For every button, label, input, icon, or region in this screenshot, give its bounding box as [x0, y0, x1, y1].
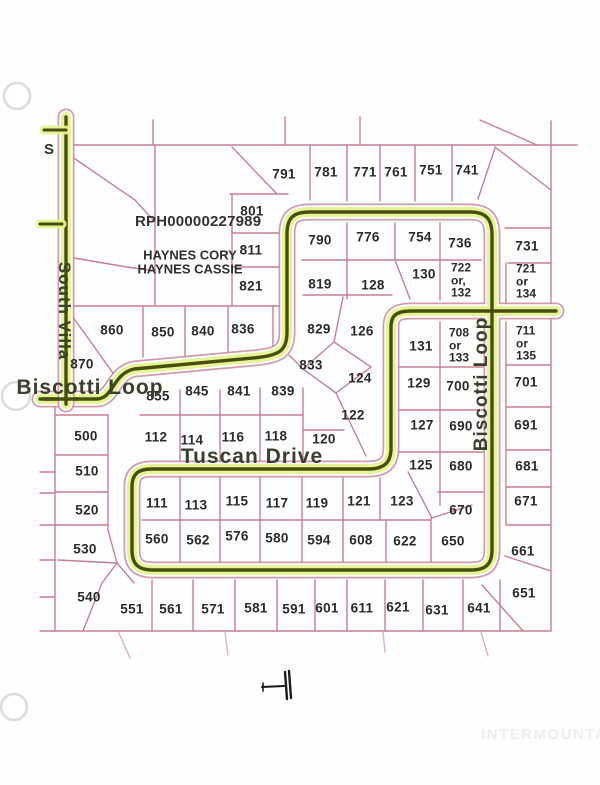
- lot-label-621: 621: [386, 600, 409, 615]
- scanned-plat-map: 7917817717617517418018118217907767547368…: [0, 0, 600, 785]
- lot-label-736: 736: [448, 236, 471, 251]
- lot-label-845: 845: [185, 384, 208, 399]
- owner-line-1: HAYNES CORY: [138, 249, 243, 263]
- lot-label-671: 671: [514, 494, 537, 509]
- lot-label-551: 551: [120, 602, 143, 617]
- lot-label-580: 580: [265, 531, 288, 546]
- lot-label-841: 841: [227, 384, 250, 399]
- lot-label-701: 701: [514, 375, 537, 390]
- lot-label-761: 761: [384, 165, 407, 180]
- lot-label-611: 611: [351, 601, 374, 616]
- lot-label-819: 819: [308, 277, 331, 292]
- lot-label-670: 670: [449, 503, 472, 518]
- lot-label-117: 117: [266, 496, 289, 511]
- lot-label-661: 661: [511, 544, 534, 559]
- lot-label-650: 650: [441, 534, 464, 549]
- lot-label-651: 651: [512, 586, 535, 601]
- punch-hole-icon: [4, 83, 30, 109]
- lot-label-776: 776: [356, 230, 379, 245]
- lot-label-711: 711 or 135: [516, 324, 536, 362]
- lot-label-540: 540: [77, 590, 100, 605]
- lot-label-829: 829: [307, 322, 330, 337]
- lot-label-622: 622: [393, 534, 416, 549]
- lot-label-510: 510: [75, 464, 98, 479]
- lot-label-811: 811: [240, 243, 263, 258]
- lot-label-116: 116: [222, 430, 245, 445]
- lot-label-560: 560: [145, 532, 168, 547]
- lot-label-608: 608: [349, 533, 372, 548]
- lot-label-690: 690: [449, 419, 472, 434]
- street-label-south-villa: South Villa: [54, 262, 74, 361]
- lot-label-113: 113: [185, 498, 208, 513]
- lot-label-681: 681: [515, 459, 538, 474]
- lot-label-115: 115: [226, 494, 249, 509]
- lot-label-131: 131: [409, 339, 432, 354]
- lot-label-530: 530: [73, 542, 96, 557]
- lot-label-111: 111: [146, 496, 168, 511]
- lot-label-833: 833: [299, 358, 322, 373]
- lot-label-791: 791: [272, 167, 295, 182]
- lot-label-591: 591: [282, 602, 305, 617]
- lot-label-721: 721 or 134: [516, 262, 536, 300]
- lot-label-125: 125: [409, 458, 432, 473]
- lot-label-119: 119: [306, 496, 329, 511]
- lot-label-691: 691: [514, 418, 537, 433]
- lot-label-821: 821: [239, 279, 262, 294]
- lot-label-731: 731: [515, 239, 538, 254]
- lot-label-680: 680: [449, 459, 472, 474]
- lot-label-581: 581: [244, 601, 267, 616]
- punch-holes: [1, 83, 30, 720]
- street-label-biscotti-loop-west: Biscotti Loop: [16, 376, 163, 400]
- street-label-biscotti-loop-east: Biscotti Loop: [471, 317, 493, 451]
- surveyor-mark-icon: [262, 671, 291, 699]
- lot-label-751: 751: [419, 163, 442, 178]
- lot-label-850: 850: [151, 325, 174, 340]
- lot-label-122: 122: [341, 408, 364, 423]
- lot-label-771: 771: [353, 165, 376, 180]
- lot-label-754: 754: [408, 230, 431, 245]
- lot-label-562: 562: [186, 533, 209, 548]
- lot-label-839: 839: [271, 384, 294, 399]
- punch-hole-icon: [1, 694, 27, 720]
- lot-label-836: 836: [231, 322, 254, 337]
- lot-label-126: 126: [350, 324, 373, 339]
- lot-label-571: 571: [201, 602, 224, 617]
- lot-label-781: 781: [314, 165, 337, 180]
- lot-label-500: 500: [74, 429, 97, 444]
- lot-label-130: 130: [412, 267, 435, 282]
- lot-label-112: 112: [145, 430, 168, 445]
- lot-label-708: 708 or 133: [449, 326, 469, 364]
- street-label-tuscan-drive: Tuscan Drive: [181, 445, 323, 469]
- lot-label-790: 790: [308, 233, 331, 248]
- lot-label-594: 594: [307, 533, 330, 548]
- intermountain-watermark: INTERMOUNTAIN: [481, 726, 600, 743]
- lot-label-576: 576: [225, 529, 248, 544]
- parcel-id-label: RPH00000227989: [135, 213, 261, 230]
- lot-label-124: 124: [348, 371, 371, 386]
- lot-label-860: 860: [100, 323, 123, 338]
- edge-cutoff-letter: S: [44, 141, 54, 158]
- lot-label-722: 722 or, 132: [451, 261, 471, 299]
- lot-label-128: 128: [361, 278, 384, 293]
- lot-label-123: 123: [390, 494, 413, 509]
- lot-label-561: 561: [159, 602, 182, 617]
- lot-label-741: 741: [455, 163, 478, 178]
- lot-label-631: 631: [425, 603, 448, 618]
- lot-label-700: 700: [446, 379, 469, 394]
- lot-label-121: 121: [347, 494, 370, 509]
- lot-label-520: 520: [75, 503, 98, 518]
- lot-label-840: 840: [191, 324, 214, 339]
- lot-label-127: 127: [410, 418, 433, 433]
- owner-name-label: HAYNES CORY HAYNES CASSIE: [138, 249, 243, 276]
- owner-line-2: HAYNES CASSIE: [138, 262, 243, 276]
- lot-label-641: 641: [467, 601, 490, 616]
- lot-label-129: 129: [407, 376, 430, 391]
- lot-label-118: 118: [265, 429, 288, 444]
- lot-label-601: 601: [315, 601, 338, 616]
